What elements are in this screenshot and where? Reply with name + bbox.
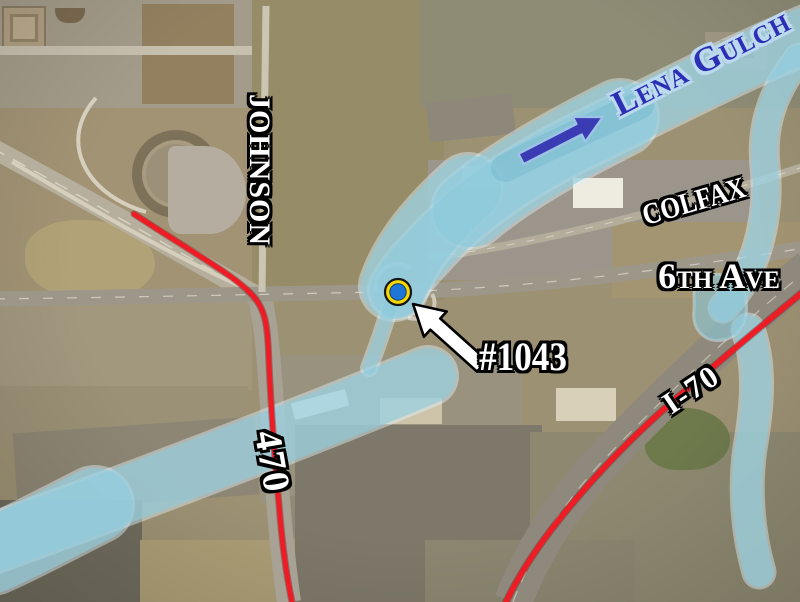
johnson-street-label: JOHNSON	[244, 94, 274, 246]
sixth-ave-label: 6th Ave	[658, 258, 780, 294]
aerial-map: Lena Gulch JOHNSON COLFAX 6th Ave #1043 …	[0, 0, 800, 602]
flood-right-lower	[747, 330, 759, 572]
route-470-label: 470	[248, 428, 296, 497]
site-marker-dot	[385, 279, 411, 305]
site-number-label: #1043	[479, 337, 567, 377]
flood-southwest-ext	[0, 505, 95, 556]
